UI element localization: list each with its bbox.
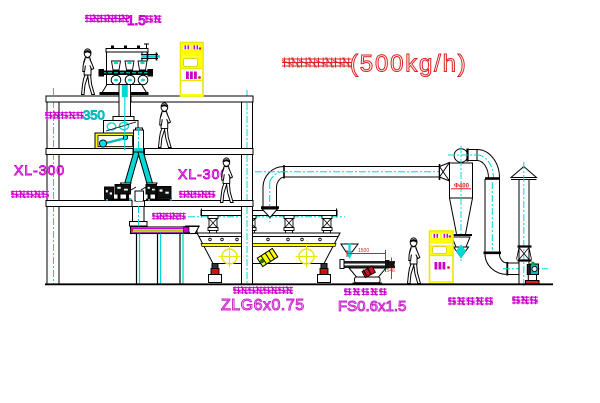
svg-text:548: 548 bbox=[387, 268, 396, 274]
svg-text:(500kg/h): (500kg/h) bbox=[350, 51, 468, 78]
svg-text:350: 350 bbox=[83, 108, 105, 123]
svg-text:XL-300: XL-300 bbox=[14, 162, 65, 178]
svg-text:1.5: 1.5 bbox=[127, 13, 146, 28]
svg-text:FS0.6x1.5: FS0.6x1.5 bbox=[338, 298, 406, 315]
svg-text:ZLG6x0.75: ZLG6x0.75 bbox=[221, 297, 305, 314]
